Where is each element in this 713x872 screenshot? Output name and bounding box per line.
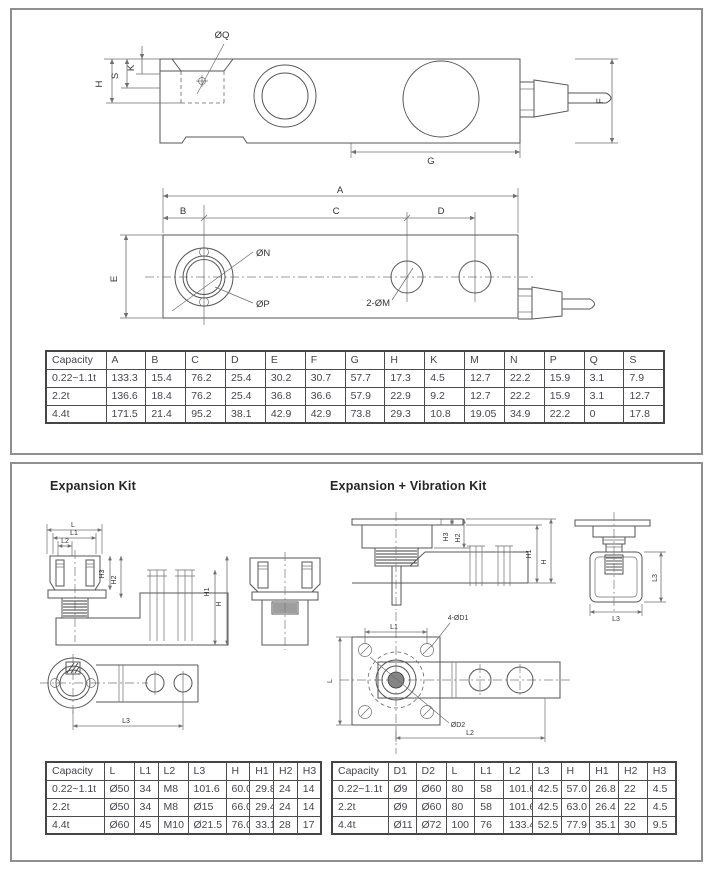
table-cell: 22 xyxy=(619,798,648,816)
table-header-row: CapacityABCDEFGHKMNPQS xyxy=(46,351,664,369)
table-cell: 22.2 xyxy=(544,405,584,423)
table-header-cell: Q xyxy=(584,351,624,369)
table-cell: 0.22~1.1t xyxy=(46,780,104,798)
table-cell: Ø9 xyxy=(388,798,416,816)
table-cell: Ø60 xyxy=(416,798,446,816)
table-cell: 12.7 xyxy=(465,369,505,387)
table-header-cell: D2 xyxy=(416,762,446,780)
table-cell: 2.2t xyxy=(46,798,104,816)
table-cell: 42.9 xyxy=(265,405,305,423)
table-cell: 133.3 xyxy=(106,369,146,387)
dim-label-c: C xyxy=(333,206,340,217)
side-view-drawing: ØQ H S K F G xyxy=(94,30,618,167)
table-header-cell: L1 xyxy=(475,762,504,780)
table-cell: 17 xyxy=(297,816,321,834)
table-row: 4.4t171.521.495.238.142.942.973.829.310.… xyxy=(46,405,664,423)
table-cell: 24 xyxy=(274,798,298,816)
table-cell: 28 xyxy=(274,816,298,834)
table-cell: 101.6 xyxy=(188,780,226,798)
table-header-cell: L3 xyxy=(532,762,561,780)
dim-label-l: L xyxy=(71,522,75,529)
table-cell: 7.9 xyxy=(624,369,664,387)
table-header-cell: H xyxy=(561,762,590,780)
table-cell: 76.2 xyxy=(186,387,226,405)
table-cell: 18.4 xyxy=(146,387,186,405)
table-header-cell: L3 xyxy=(188,762,226,780)
table-cell: 26.8 xyxy=(590,780,619,798)
loadcell-drawings: ØQ H S K F G xyxy=(0,0,713,345)
kit-drawings: L L1 L2 H3 H2 H1 H xyxy=(0,462,713,760)
table-cell: 34.9 xyxy=(504,405,544,423)
table-cell: 14 xyxy=(297,780,321,798)
dim-label-op: ØP xyxy=(256,299,270,310)
dim-label-2m: 2-ØM xyxy=(366,298,390,309)
table-cell: 3.1 xyxy=(584,387,624,405)
table-header-cell: H3 xyxy=(297,762,321,780)
dim-label-h: H xyxy=(94,80,105,87)
table-cell: 4.5 xyxy=(647,798,676,816)
table-cell: 42.5 xyxy=(532,780,561,798)
table-header-cell: M xyxy=(465,351,505,369)
table-cell: 76.0 xyxy=(226,816,250,834)
table-cell: 36.6 xyxy=(305,387,345,405)
table-header-row: CapacityLL1L2L3HH1H2H3 xyxy=(46,762,321,780)
table-header-cell: H xyxy=(385,351,425,369)
table-header-cell: H1 xyxy=(250,762,274,780)
table-cell: 57.7 xyxy=(345,369,385,387)
table-cell: 30.2 xyxy=(265,369,305,387)
dim-label-b: B xyxy=(180,206,186,217)
table-cell: 95.2 xyxy=(186,405,226,423)
vibration-kit-plan-view: L1 4-ØD1 ØD2 L2 L xyxy=(327,612,572,754)
expansion-kit-title: Expansion Kit xyxy=(50,479,136,493)
table-header-cell: L2 xyxy=(504,762,533,780)
table-header-cell: Capacity xyxy=(332,762,388,780)
table-cell: 25.4 xyxy=(226,387,266,405)
dim-label-l1: L1 xyxy=(390,624,398,631)
table-row: 2.2t136.618.476.225.436.836.657.922.99.2… xyxy=(46,387,664,405)
table-row: 4.4tØ11Ø7210076133.452.577.935.1309.5 xyxy=(332,816,676,834)
table-cell: Ø15 xyxy=(188,798,226,816)
table-cell: 45 xyxy=(134,816,158,834)
table-header-cell: H2 xyxy=(274,762,298,780)
dim-label-d2: ØD2 xyxy=(451,722,466,729)
table-cell: 57.0 xyxy=(561,780,590,798)
table-cell: 22 xyxy=(619,780,648,798)
table-cell: 9.2 xyxy=(425,387,465,405)
dim-label-l3: L3 xyxy=(652,574,659,582)
table-cell: 4.4t xyxy=(46,405,106,423)
table-cell: 136.6 xyxy=(106,387,146,405)
dim-label-h: H xyxy=(541,559,548,564)
vibration-kit-side-view: H3 H2 H1 H xyxy=(352,512,556,610)
vibration-kit-title: Expansion + Vibration Kit xyxy=(330,479,487,493)
table-header-cell: K xyxy=(425,351,465,369)
dim-label-l: L xyxy=(327,679,334,683)
table-header-cell: L xyxy=(446,762,475,780)
table-header-cell: E xyxy=(265,351,305,369)
dim-label-d: D xyxy=(438,206,445,217)
dim-label-l3: L3 xyxy=(612,616,620,623)
table-cell: 25.4 xyxy=(226,369,266,387)
table-cell: 171.5 xyxy=(106,405,146,423)
table-header-cell: H xyxy=(226,762,250,780)
dimensions-table: CapacityABCDEFGHKMNPQS0.22~1.1t133.315.4… xyxy=(45,350,665,424)
table-cell: 101.6 xyxy=(504,780,533,798)
table-header-cell: L1 xyxy=(134,762,158,780)
table-cell: 2.2t xyxy=(332,798,388,816)
dim-label-a: A xyxy=(337,185,344,196)
table-cell: 15.9 xyxy=(544,387,584,405)
table-cell: 30 xyxy=(619,816,648,834)
table-header-cell: A xyxy=(106,351,146,369)
dim-label-h2: H2 xyxy=(111,575,118,584)
table-cell: 3.1 xyxy=(584,369,624,387)
table-cell: 101.6 xyxy=(504,798,533,816)
dim-label-oq: ØQ xyxy=(215,30,230,41)
table-cell: 22.2 xyxy=(504,387,544,405)
table-cell: 34 xyxy=(134,798,158,816)
table-cell: M8 xyxy=(158,780,188,798)
table-header-cell: H2 xyxy=(619,762,648,780)
table-cell: Ø50 xyxy=(104,780,134,798)
table-cell: 58 xyxy=(475,798,504,816)
table-cell: 4.4t xyxy=(332,816,388,834)
table-cell: M8 xyxy=(158,798,188,816)
table-cell: 29.4 xyxy=(250,798,274,816)
table-cell: 15.9 xyxy=(544,369,584,387)
table-cell: 4.5 xyxy=(647,780,676,798)
table-cell: 52.5 xyxy=(532,816,561,834)
table-cell: 10.8 xyxy=(425,405,465,423)
table-header-cell: L xyxy=(104,762,134,780)
table-cell: 73.8 xyxy=(345,405,385,423)
table-cell: 14 xyxy=(297,798,321,816)
table-cell: M10 xyxy=(158,816,188,834)
dim-label-l3: L3 xyxy=(122,718,130,725)
table-cell: 76.2 xyxy=(186,369,226,387)
expansion-kit-table: CapacityLL1L2L3HH1H2H30.22~1.1tØ5034M810… xyxy=(45,761,322,835)
table-cell: 21.4 xyxy=(146,405,186,423)
table-cell: 0 xyxy=(584,405,624,423)
table-header-cell: G xyxy=(345,351,385,369)
table-cell: 66.0 xyxy=(226,798,250,816)
dim-label-l2: L2 xyxy=(466,730,474,737)
table-cell: 77.9 xyxy=(561,816,590,834)
table-cell: 0.22~1.1t xyxy=(46,369,106,387)
table-cell: 33.1 xyxy=(250,816,274,834)
table-cell: 60.0 xyxy=(226,780,250,798)
dim-label-g: G xyxy=(427,156,434,167)
table-cell: Ø21.5 xyxy=(188,816,226,834)
table-header-cell: H3 xyxy=(647,762,676,780)
dim-label-on: ØN xyxy=(256,248,270,259)
table-cell: 133.4 xyxy=(504,816,533,834)
table-cell: Ø11 xyxy=(388,816,416,834)
table-cell: 80 xyxy=(446,780,475,798)
vibration-foot-view: L3 L3 xyxy=(575,512,666,623)
table-row: 0.22~1.1tØ5034M8101.660.029.82414 xyxy=(46,780,321,798)
table-header-cell: L2 xyxy=(158,762,188,780)
table-cell: 63.0 xyxy=(561,798,590,816)
table-header-cell: Capacity xyxy=(46,351,106,369)
dim-label-h: H xyxy=(216,601,223,606)
table-cell: 22.9 xyxy=(385,387,425,405)
table-row: 0.22~1.1tØ9Ø608058101.642.557.026.8224.5 xyxy=(332,780,676,798)
dim-label-e: E xyxy=(109,276,120,282)
dim-label-h2: H2 xyxy=(455,533,462,542)
table-cell: 38.1 xyxy=(226,405,266,423)
table-cell: 29.3 xyxy=(385,405,425,423)
dim-label-l1: L1 xyxy=(70,530,78,537)
table-cell: 12.7 xyxy=(624,387,664,405)
table-row: 4.4tØ6045M10Ø21.576.033.12817 xyxy=(46,816,321,834)
table-header-cell: N xyxy=(504,351,544,369)
table-cell: 42.9 xyxy=(305,405,345,423)
table-cell: 24 xyxy=(274,780,298,798)
table-cell: 17.8 xyxy=(624,405,664,423)
table-cell: 29.8 xyxy=(250,780,274,798)
dim-label-s: S xyxy=(110,73,121,79)
table-cell: 42.5 xyxy=(532,798,561,816)
dim-label-f: F xyxy=(595,98,606,104)
table-cell: 17.3 xyxy=(385,369,425,387)
table-header-cell: Capacity xyxy=(46,762,104,780)
table-header-cell: F xyxy=(305,351,345,369)
table-cell: 30.7 xyxy=(305,369,345,387)
expansion-kit-plan-view: L3 xyxy=(40,654,198,730)
table-cell: 80 xyxy=(446,798,475,816)
table-cell: Ø50 xyxy=(104,798,134,816)
table-header-cell: D1 xyxy=(388,762,416,780)
table-cell: 26.4 xyxy=(590,798,619,816)
table-cell: Ø9 xyxy=(388,780,416,798)
table-row: 0.22~1.1t133.315.476.225.430.230.757.717… xyxy=(46,369,664,387)
table-cell: 4.4t xyxy=(46,816,104,834)
table-cell: 100 xyxy=(446,816,475,834)
table-cell: 34 xyxy=(134,780,158,798)
table-cell: 35.1 xyxy=(590,816,619,834)
table-row: 2.2tØ9Ø608058101.642.563.026.4224.5 xyxy=(332,798,676,816)
dim-label-k: K xyxy=(126,64,137,71)
table-header-cell: B xyxy=(146,351,186,369)
table-cell: 76 xyxy=(475,816,504,834)
table-cell: Ø72 xyxy=(416,816,446,834)
dim-label-h1: H1 xyxy=(526,549,533,558)
table-cell: Ø60 xyxy=(416,780,446,798)
table-cell: 19.05 xyxy=(465,405,505,423)
table-header-row: CapacityD1D2LL1L2L3HH1H2H3 xyxy=(332,762,676,780)
table-cell: 22.2 xyxy=(504,369,544,387)
expansion-kit-side-view: L L1 L2 H3 H2 H1 H xyxy=(47,522,228,645)
table-cell: 36.8 xyxy=(265,387,305,405)
table-cell: 12.7 xyxy=(465,387,505,405)
table-cell: 58 xyxy=(475,780,504,798)
datasheet-page: { "panel_top": { "side_labels": {"oq":"Ø… xyxy=(0,0,713,872)
table-cell: 9.5 xyxy=(647,816,676,834)
table-cell: 2.2t xyxy=(46,387,106,405)
table-cell: 57.9 xyxy=(345,387,385,405)
expansion-kit-front-view xyxy=(250,552,320,650)
table-header-cell: P xyxy=(544,351,584,369)
table-header-cell: D xyxy=(226,351,266,369)
dim-label-4d1: 4-ØD1 xyxy=(448,615,469,622)
table-header-cell: S xyxy=(624,351,664,369)
dim-label-h3: H3 xyxy=(443,532,450,541)
dim-label-l2: L2 xyxy=(61,538,69,545)
table-row: 2.2tØ5034M8Ø1566.029.42414 xyxy=(46,798,321,816)
vibration-kit-table: CapacityD1D2LL1L2L3HH1H2H30.22~1.1tØ9Ø60… xyxy=(331,761,677,835)
table-cell: 15.4 xyxy=(146,369,186,387)
table-cell: 0.22~1.1t xyxy=(332,780,388,798)
table-cell: 4.5 xyxy=(425,369,465,387)
dim-label-h1: H1 xyxy=(204,587,211,596)
plan-view-drawing: A B C D E ØN ØP 2-ØM xyxy=(109,185,595,325)
table-header-cell: C xyxy=(186,351,226,369)
table-cell: Ø60 xyxy=(104,816,134,834)
dim-label-h3: H3 xyxy=(99,569,106,578)
table-header-cell: H1 xyxy=(590,762,619,780)
